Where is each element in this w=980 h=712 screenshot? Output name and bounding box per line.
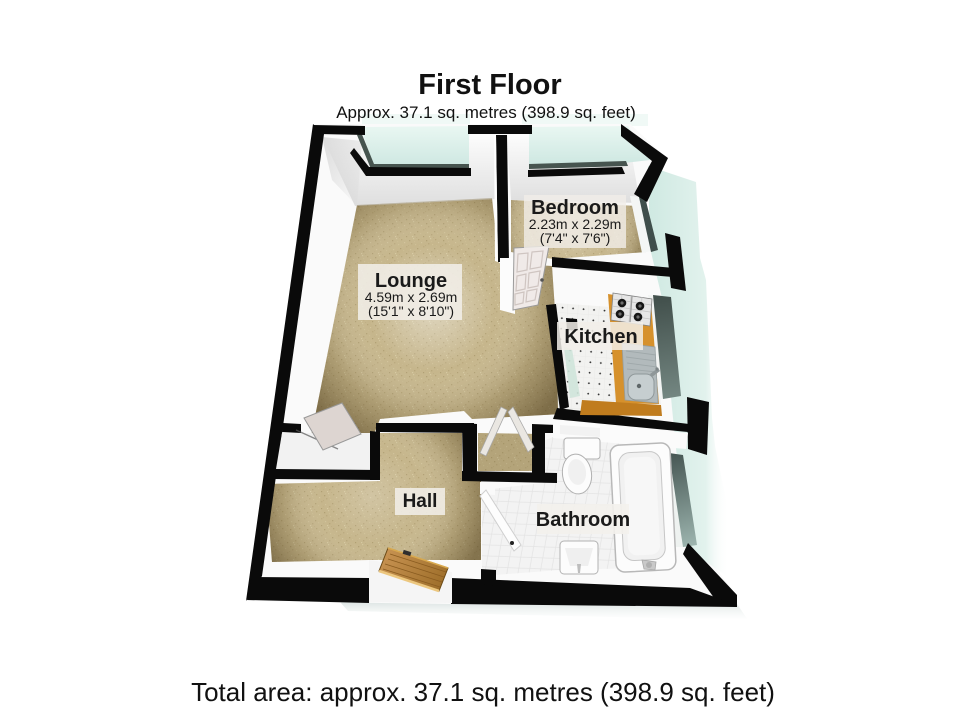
svg-text:(15'1" x 8'10"): (15'1" x 8'10") [368, 303, 454, 319]
svg-text:(7'4" x 7'6"): (7'4" x 7'6") [540, 230, 611, 246]
svg-text:Total area: approx. 37.1 sq. m: Total area: approx. 37.1 sq. metres (398… [191, 677, 775, 707]
svg-text:Kitchen: Kitchen [564, 326, 637, 348]
svg-text:First Floor: First Floor [418, 69, 561, 101]
svg-text:Approx. 37.1 sq. metres (398.9: Approx. 37.1 sq. metres (398.9 sq. feet) [336, 103, 636, 122]
svg-text:Bathroom: Bathroom [536, 509, 630, 531]
svg-text:Hall: Hall [403, 491, 438, 512]
